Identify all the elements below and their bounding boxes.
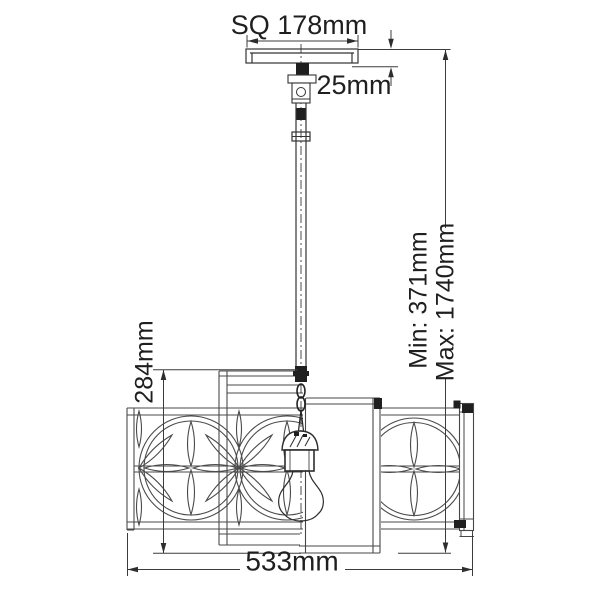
- ceiling-canopy: [246, 49, 358, 63]
- dim-label-overall-width: 533mm: [245, 545, 338, 576]
- dim-label-canopy-height: 25mm: [316, 70, 391, 100]
- dim-label-min-drop: Min: 371mm: [405, 231, 433, 369]
- dim-label-canopy-square: SQ 178mm: [231, 10, 368, 40]
- lamp-socket: [282, 431, 318, 471]
- hang-straight-joint: [288, 63, 316, 120]
- dim-label-max-drop: Max: 1740mm: [432, 223, 460, 381]
- shade-right-post: [454, 401, 475, 537]
- dimension-drop-height: Min: 371mm Max: 1740mm: [398, 50, 460, 553]
- inner-shade-front: [299, 396, 382, 554]
- dimension-overall-width: 533mm: [128, 533, 473, 576]
- fixture-drawing: SQ 178mm 25mm Min: 371mm Max: 1740mm 284…: [0, 0, 600, 600]
- shade-corner-bracket: [374, 398, 382, 409]
- canvas: SQ 178mm 25mm Min: 371mm Max: 1740mm 284…: [0, 0, 600, 600]
- dimension-canopy-square: SQ 178mm: [231, 10, 368, 47]
- dim-label-shade-height: 284mm: [131, 320, 159, 403]
